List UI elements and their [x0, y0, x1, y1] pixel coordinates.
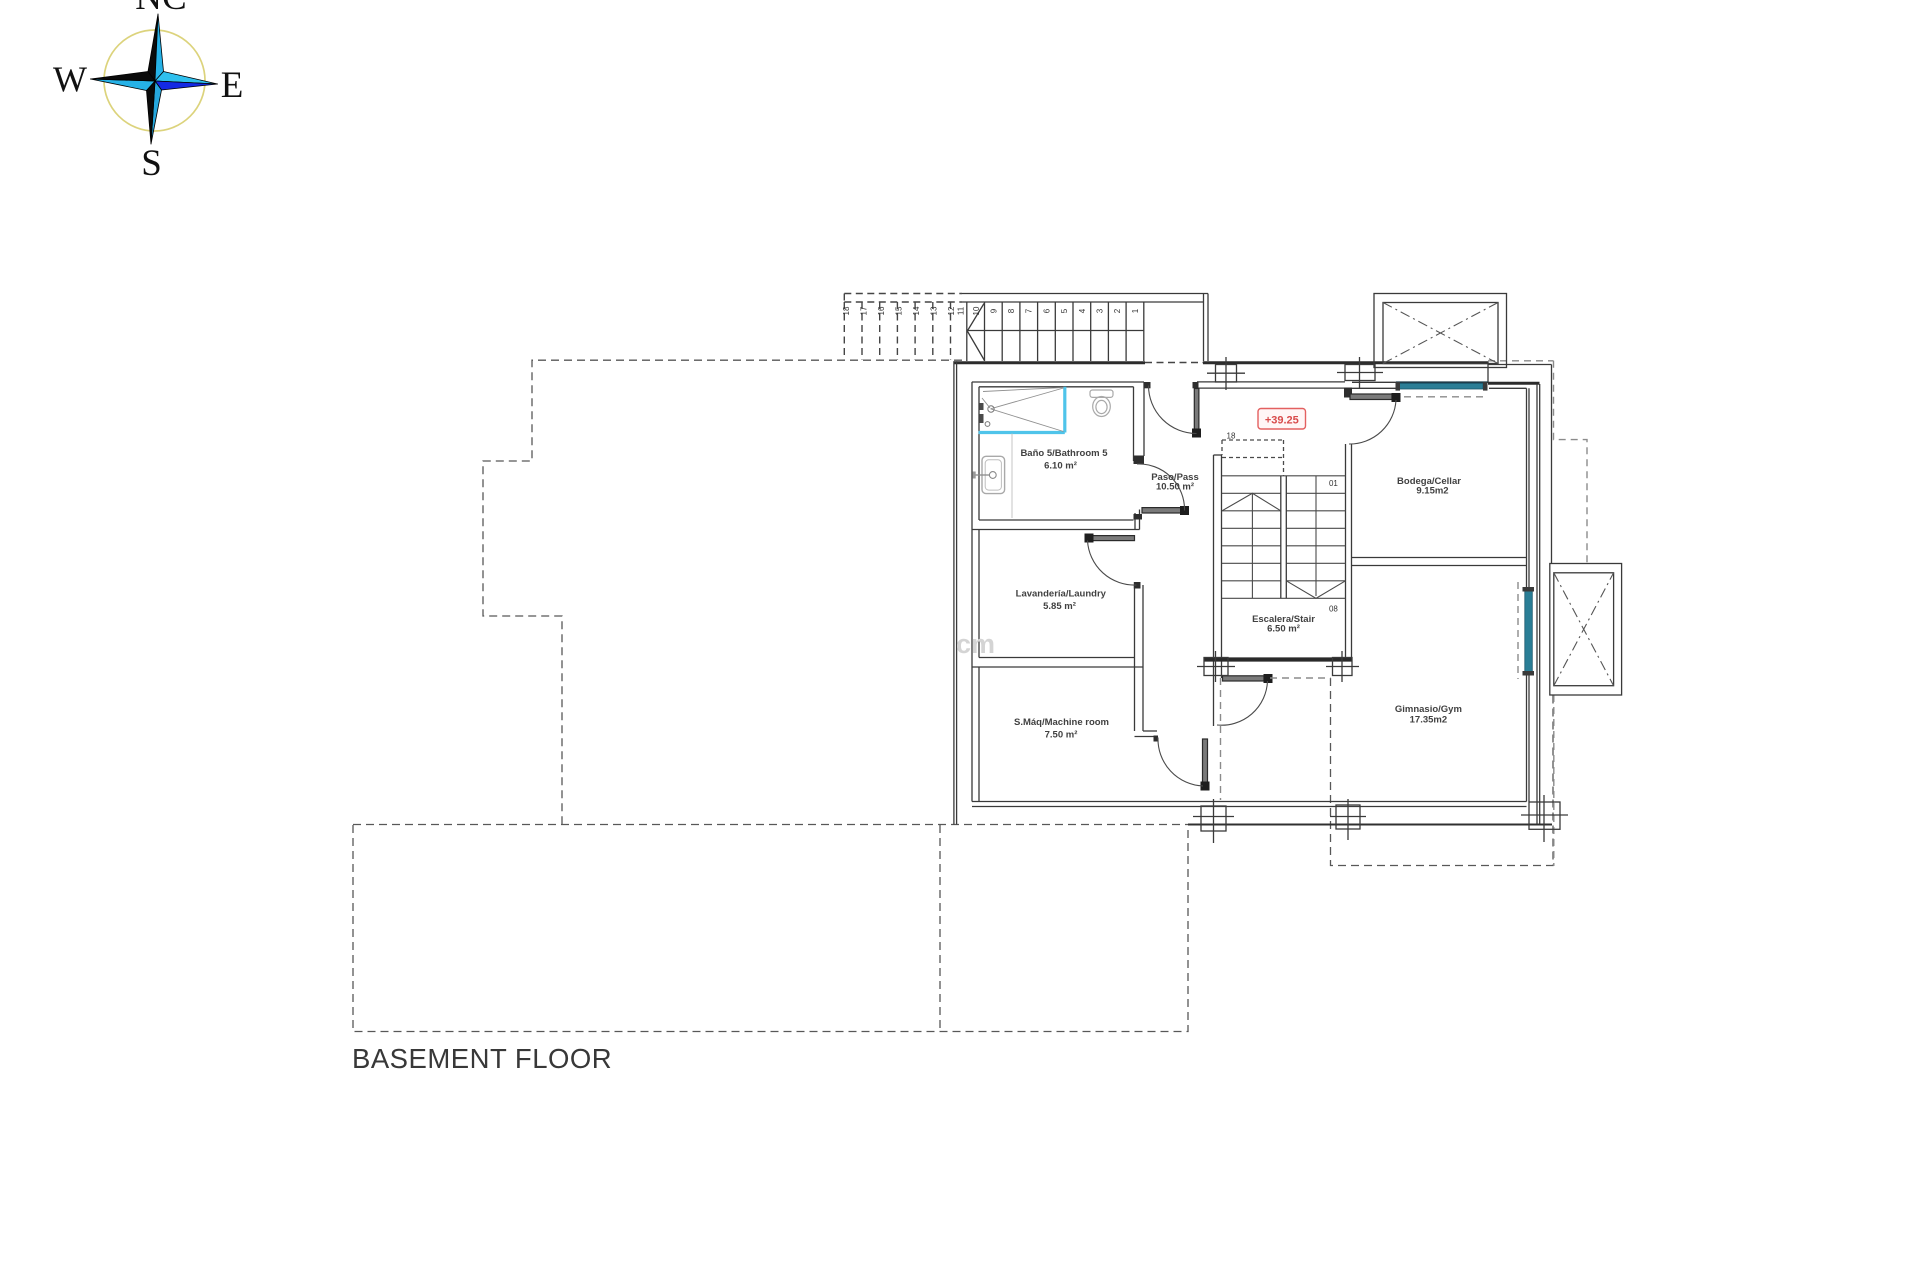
svg-text:18: 18	[842, 306, 851, 315]
svg-text:10: 10	[972, 306, 981, 315]
svg-text:12: 12	[947, 306, 956, 315]
svg-text:5.85 m²: 5.85 m²	[1043, 601, 1076, 612]
svg-text:9.15m2: 9.15m2	[1416, 486, 1448, 497]
svg-text:NC: NC	[135, 0, 186, 18]
svg-text:E: E	[221, 65, 244, 106]
svg-text:Gimnasio/Gym: Gimnasio/Gym	[1395, 704, 1462, 715]
svg-text:W: W	[53, 59, 87, 99]
svg-text:7.50 m²: 7.50 m²	[1045, 730, 1078, 741]
svg-text:+39.25: +39.25	[1265, 415, 1299, 427]
svg-text:17.35m2: 17.35m2	[1410, 715, 1448, 726]
svg-text:6: 6	[1042, 308, 1051, 313]
svg-text:14: 14	[912, 306, 921, 315]
svg-text:10.50 m²: 10.50 m²	[1156, 482, 1194, 493]
svg-text:15: 15	[895, 306, 904, 315]
svg-text:2: 2	[1113, 308, 1122, 313]
svg-text:7: 7	[1025, 308, 1034, 313]
svg-text:01: 01	[1329, 479, 1338, 488]
svg-text:Lavandería/Laundry: Lavandería/Laundry	[1016, 589, 1107, 600]
svg-text:11: 11	[957, 306, 966, 315]
svg-text:8: 8	[1007, 308, 1016, 313]
svg-text:1: 1	[1131, 308, 1140, 313]
svg-text:17: 17	[860, 306, 869, 315]
svg-text:16: 16	[877, 306, 886, 315]
svg-text:13: 13	[930, 306, 939, 315]
svg-text:cm: cm	[956, 629, 995, 659]
svg-text:Baño 5/Bathroom 5: Baño 5/Bathroom 5	[1020, 448, 1108, 459]
svg-text:9: 9	[989, 308, 998, 313]
svg-text:S.Máq/Machine room: S.Máq/Machine room	[1014, 717, 1109, 728]
svg-text:5: 5	[1060, 308, 1069, 313]
svg-text:6.10 m²: 6.10 m²	[1044, 461, 1077, 472]
svg-text:18: 18	[1227, 432, 1236, 441]
svg-text:4: 4	[1078, 308, 1087, 313]
svg-text:BASEMENT FLOOR: BASEMENT FLOOR	[352, 1043, 612, 1074]
svg-text:08: 08	[1329, 605, 1338, 614]
svg-text:6.50 m²: 6.50 m²	[1267, 624, 1300, 635]
svg-text:3: 3	[1096, 308, 1105, 313]
svg-text:S: S	[141, 143, 162, 184]
